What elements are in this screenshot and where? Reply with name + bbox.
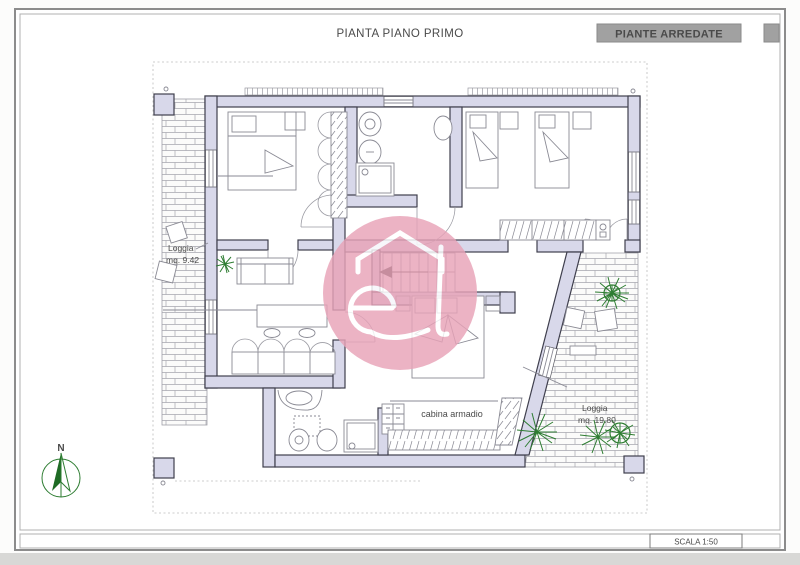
sink xyxy=(286,391,312,405)
loggia-right-name: Loggia xyxy=(582,403,608,413)
window-left-1 xyxy=(206,150,217,187)
loggia-chair xyxy=(563,307,584,328)
loggia-right-area: mq. 19.80 xyxy=(578,415,616,425)
agency-watermark-logo xyxy=(323,216,477,370)
wardrobe-bedroom2 xyxy=(500,220,610,240)
window-left-2 xyxy=(206,300,217,334)
loggia-table xyxy=(570,346,596,355)
shower-box xyxy=(356,163,394,196)
desk xyxy=(257,305,327,327)
page-title: PIANTA PIANO PRIMO xyxy=(336,28,463,40)
closet-label: cabina armadio xyxy=(421,409,483,419)
toilet xyxy=(359,112,381,136)
washbasin xyxy=(434,116,452,140)
scanned-floor-plan-page: SCALA 1:50 PIANTA PIANO PRIMO PIANTE ARR… xyxy=(0,0,800,565)
pillar-bottom-right xyxy=(624,456,644,473)
balcony-edge-right xyxy=(468,88,618,95)
scale-label: SCALA 1:50 xyxy=(674,538,718,547)
window-top xyxy=(384,97,413,107)
single-bed-2 xyxy=(535,112,569,188)
balcony-edge-left xyxy=(245,88,383,95)
bidet xyxy=(317,429,337,451)
single-bed-1 xyxy=(466,112,498,188)
loggia-chair xyxy=(595,309,618,332)
scan-edge-shadow xyxy=(0,553,800,565)
pillar-bottom-left xyxy=(154,458,174,478)
pillar-top-left xyxy=(154,94,174,115)
floor-plan-drawing: SCALA 1:50 PIANTA PIANO PRIMO PIANTE ARR… xyxy=(0,0,800,565)
window-right-1 xyxy=(629,152,640,192)
furnished-plans-badge-label: PIANTE ARREDATE xyxy=(615,29,723,41)
badge-border-stub xyxy=(764,24,779,42)
north-label: N xyxy=(57,443,64,454)
window-right-2 xyxy=(629,200,640,224)
closet-shelving xyxy=(388,430,500,450)
double-bed-1 xyxy=(228,112,296,190)
toilet xyxy=(289,429,309,451)
sofa xyxy=(237,258,293,284)
loggia-left-area: mq. 9.42 xyxy=(166,255,199,265)
loggia-left-name: Loggia xyxy=(168,243,194,253)
shower-box xyxy=(344,420,378,452)
